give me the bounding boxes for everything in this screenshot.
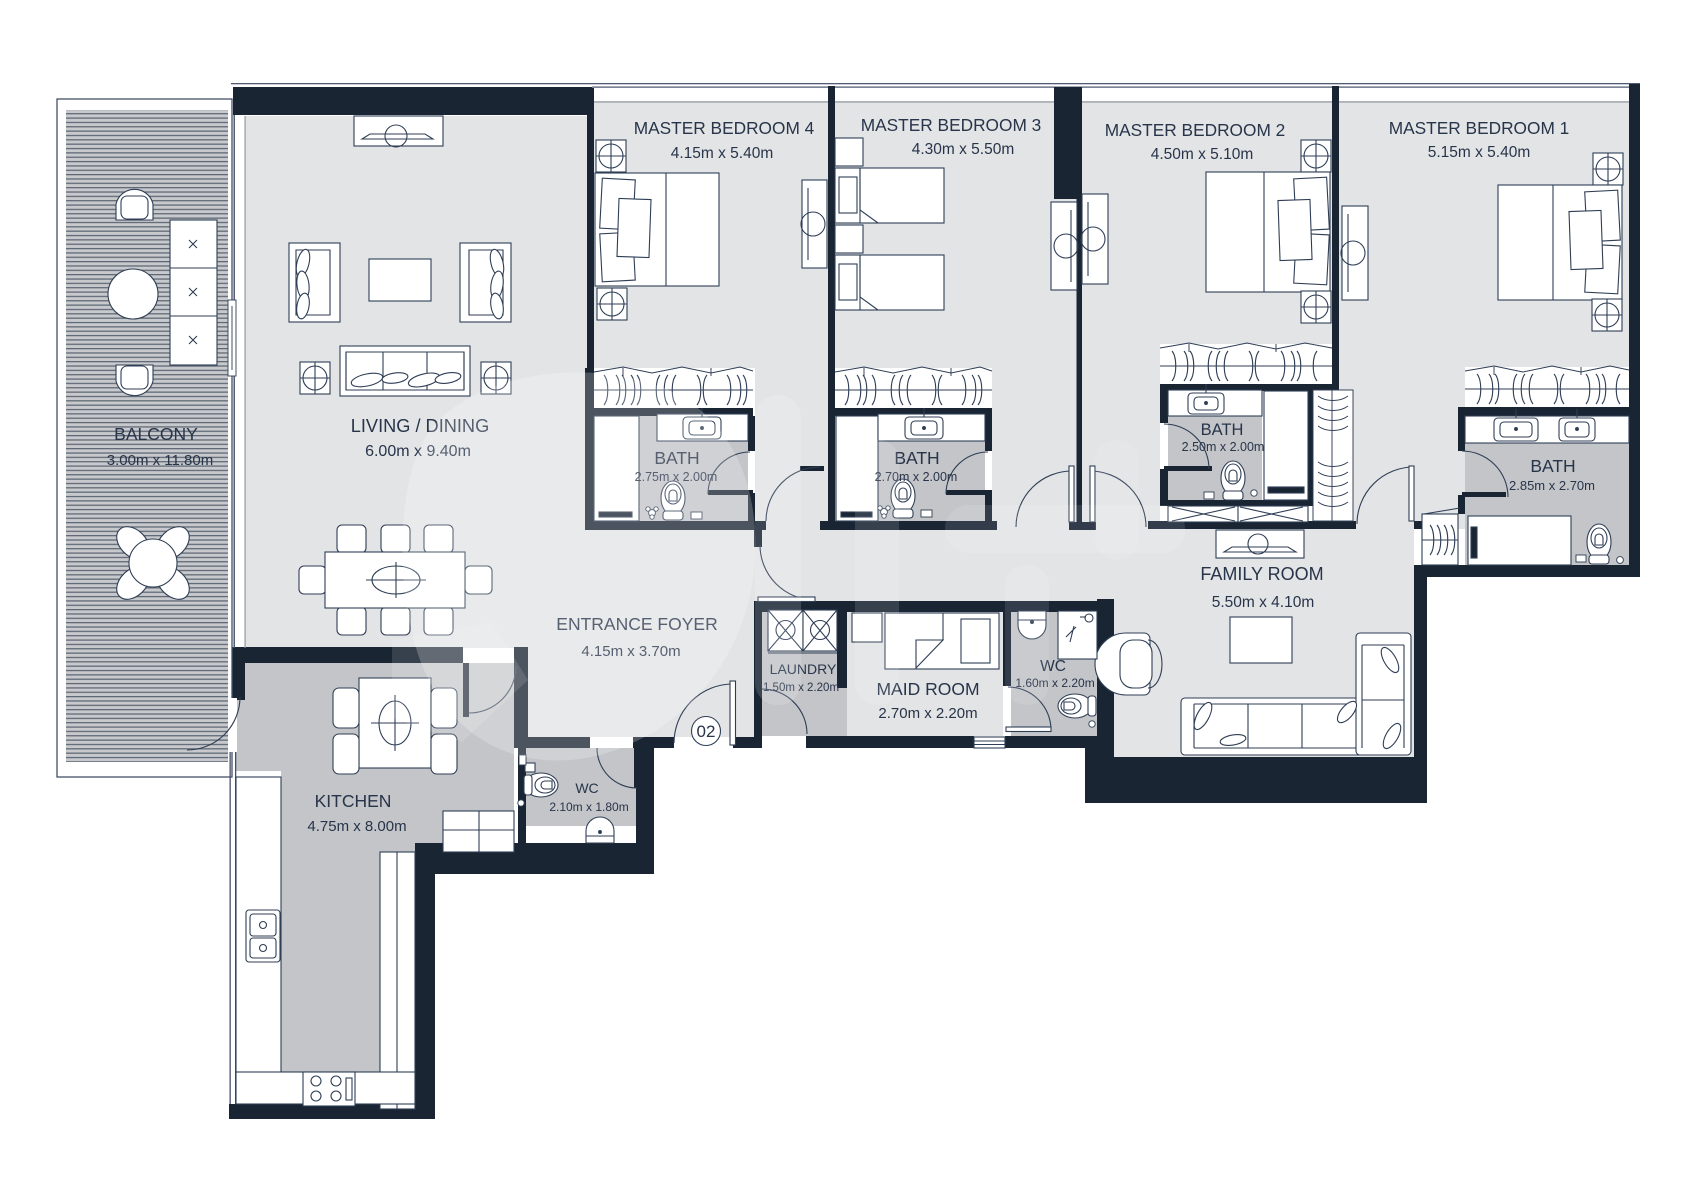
svg-text:2.10m x 1.80m: 2.10m x 1.80m: [549, 800, 628, 814]
svg-text:3.00m x 11.80m: 3.00m x 11.80m: [107, 452, 213, 469]
svg-text:02: 02: [697, 722, 716, 741]
svg-text:BATH: BATH: [894, 448, 939, 468]
svg-text:2.70m x 2.20m: 2.70m x 2.20m: [878, 705, 977, 722]
svg-text:BATH: BATH: [1530, 456, 1575, 476]
svg-text:4.15m x 5.40m: 4.15m x 5.40m: [671, 145, 774, 162]
svg-text:4.50m x 5.10m: 4.50m x 5.10m: [1151, 146, 1254, 163]
svg-text:MASTER BEDROOM 1: MASTER BEDROOM 1: [1389, 118, 1570, 138]
svg-text:5.50m x 4.10m: 5.50m x 4.10m: [1212, 594, 1315, 611]
svg-text:MASTER BEDROOM 4: MASTER BEDROOM 4: [634, 118, 815, 138]
svg-text:BATH: BATH: [1201, 421, 1244, 439]
svg-text:4.30m x 5.50m: 4.30m x 5.50m: [912, 141, 1015, 158]
svg-text:MASTER BEDROOM 2: MASTER BEDROOM 2: [1105, 120, 1286, 140]
svg-text:KITCHEN: KITCHEN: [315, 791, 392, 811]
svg-text:WC: WC: [575, 780, 598, 796]
svg-text:2.50m x 2.00m: 2.50m x 2.00m: [1182, 440, 1265, 454]
svg-text:5.15m x 5.40m: 5.15m x 5.40m: [1428, 144, 1531, 161]
svg-text:MASTER BEDROOM 3: MASTER BEDROOM 3: [861, 115, 1042, 135]
svg-text:4.75m x 8.00m: 4.75m x 8.00m: [307, 818, 406, 835]
svg-text:BALCONY: BALCONY: [114, 424, 198, 444]
svg-text:2.85m x 2.70m: 2.85m x 2.70m: [1509, 478, 1595, 493]
svg-text:FAMILY ROOM: FAMILY ROOM: [1200, 564, 1323, 584]
